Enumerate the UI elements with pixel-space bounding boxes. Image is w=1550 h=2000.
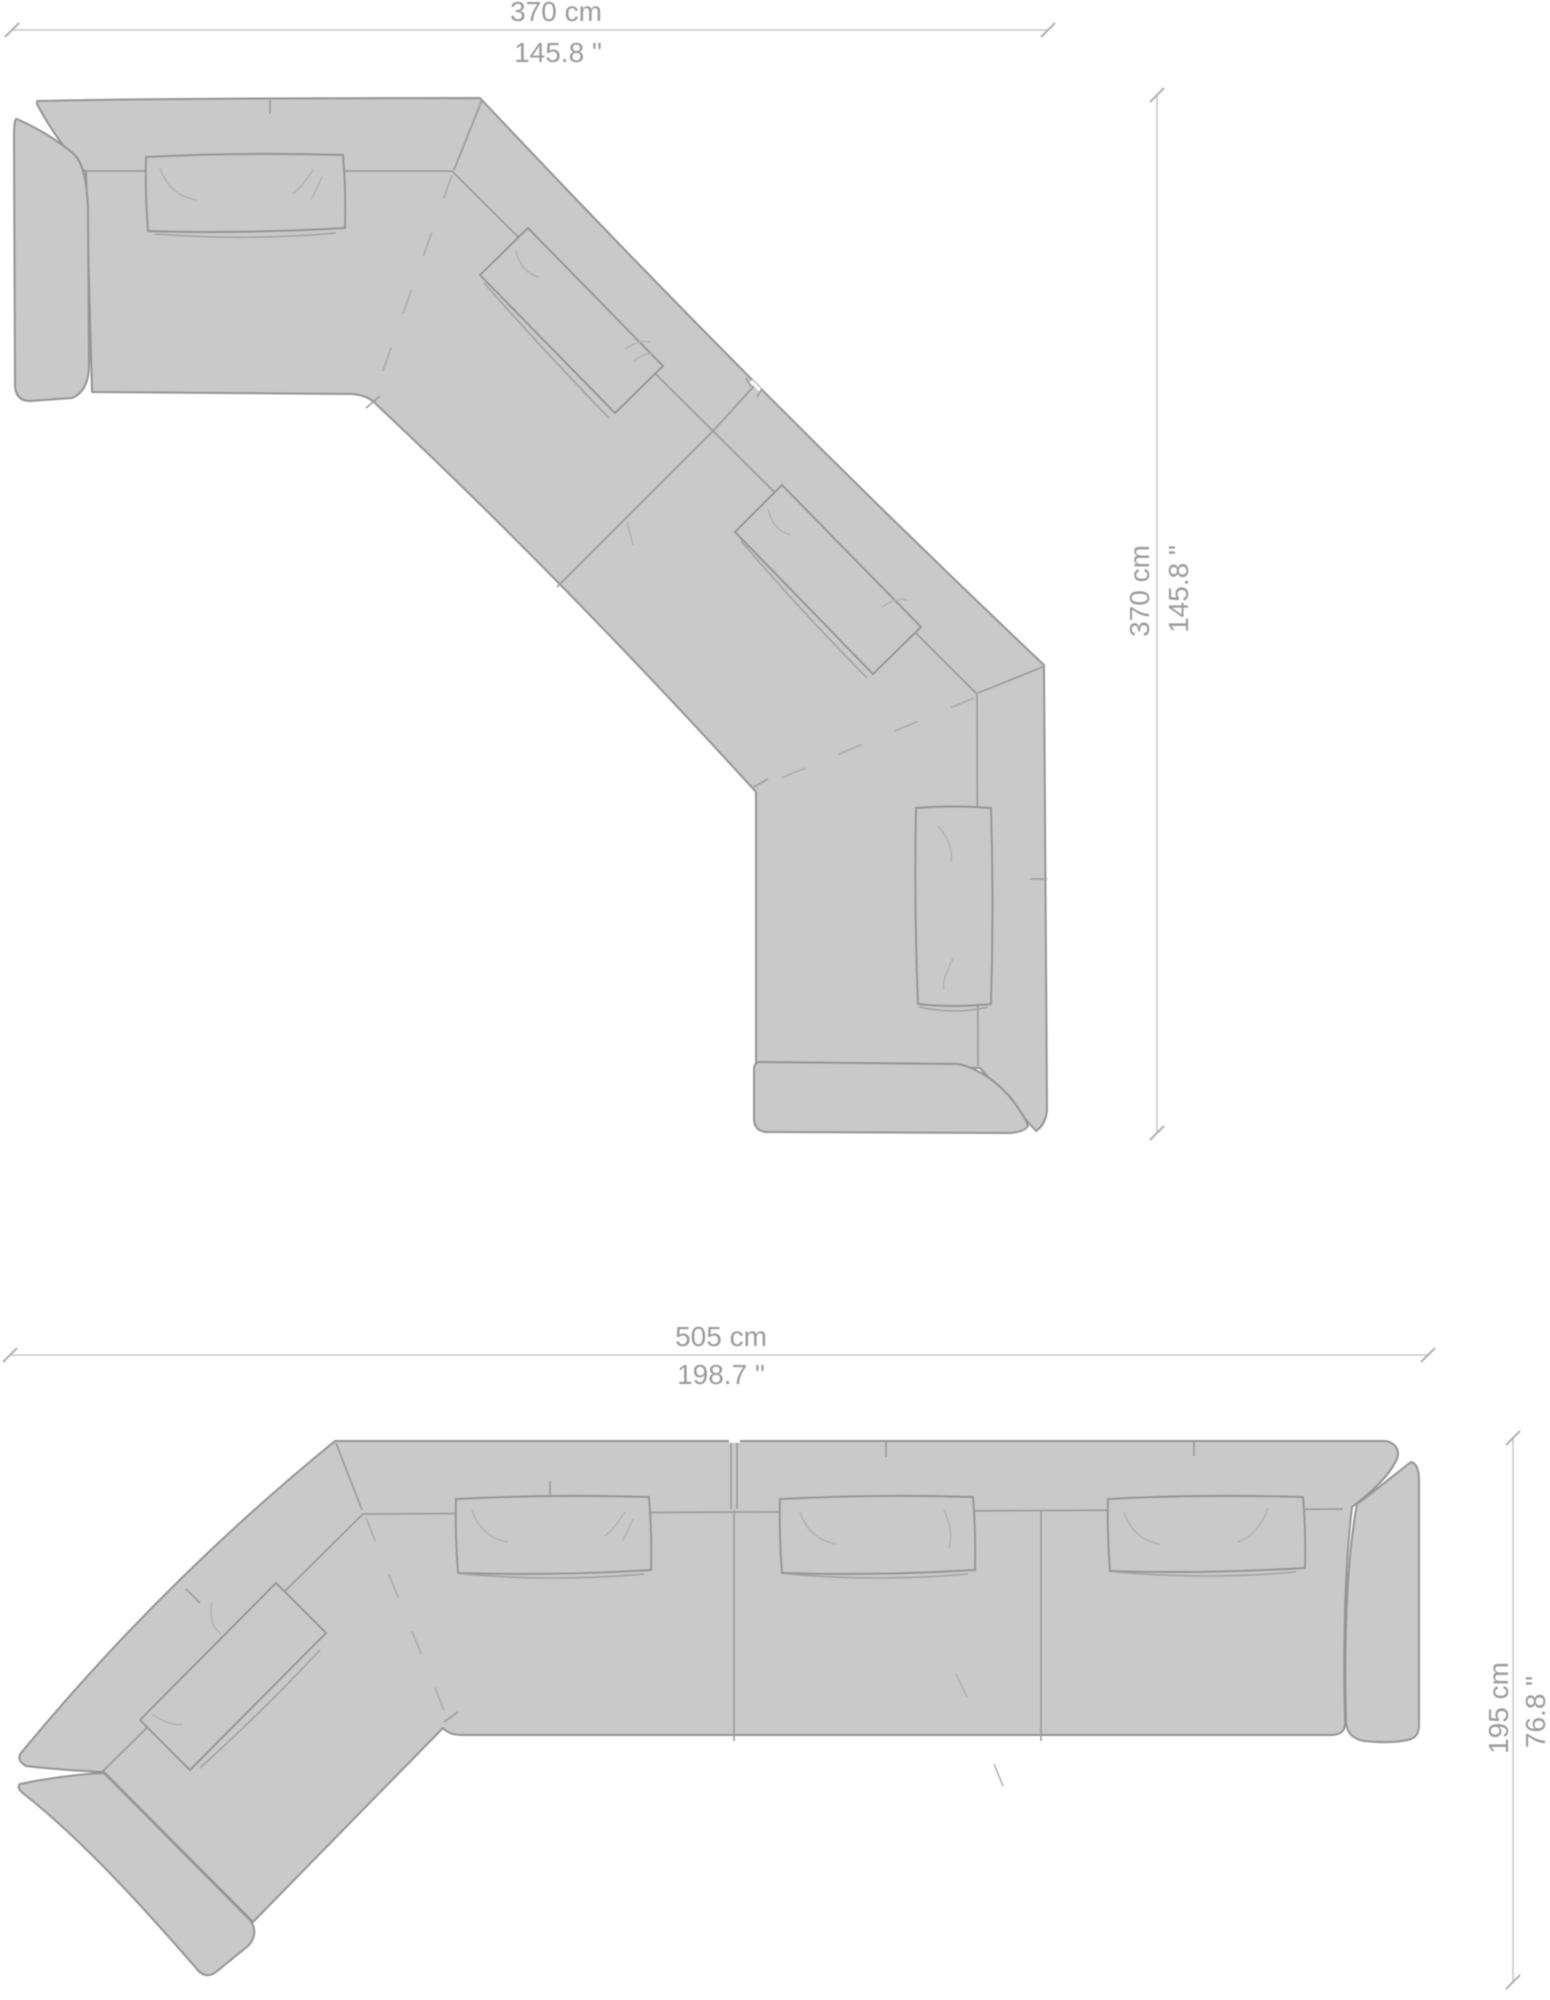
svg-text:198.7 ": 198.7 " [677, 1359, 765, 1390]
svg-text:145.8 ": 145.8 " [1163, 545, 1194, 633]
svg-text:370 cm: 370 cm [510, 0, 602, 27]
svg-text:370 cm: 370 cm [1124, 545, 1155, 637]
svg-text:76.8 ": 76.8 " [1520, 1676, 1550, 1748]
svg-text:505 cm: 505 cm [675, 1321, 767, 1352]
svg-text:145.8 ": 145.8 " [514, 37, 602, 68]
svg-text:195 cm: 195 cm [1483, 1662, 1514, 1754]
